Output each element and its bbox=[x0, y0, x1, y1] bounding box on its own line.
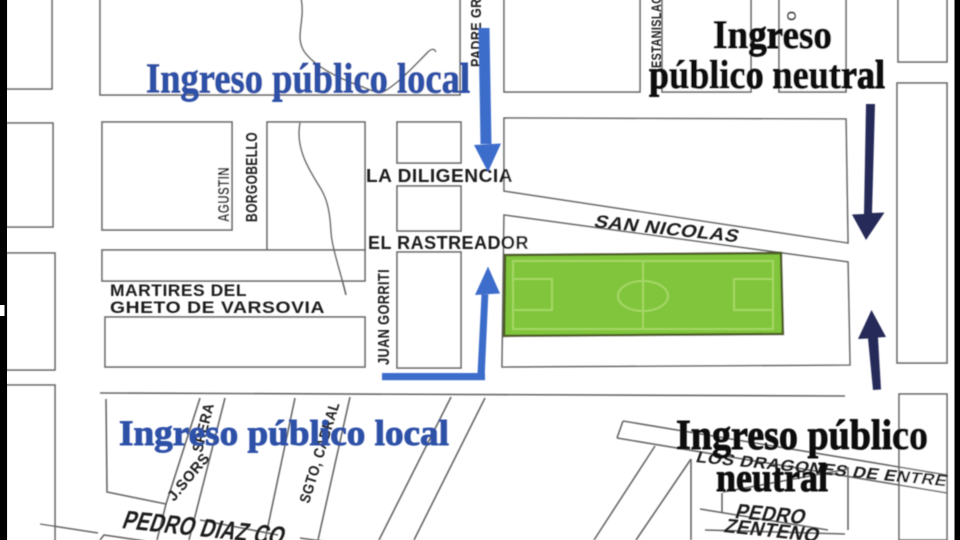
svg-text:Ingreso: Ingreso bbox=[713, 12, 832, 57]
svg-text:Ingreso público local: Ingreso público local bbox=[119, 413, 449, 453]
svg-text:GHETO DE VARSOVIA: GHETO DE VARSOVIA bbox=[110, 298, 325, 317]
svg-text:EL RASTREADOR: EL RASTREADOR bbox=[368, 232, 529, 253]
svg-text:público neutral: público neutral bbox=[649, 52, 885, 97]
svg-text:AGUSTIN: AGUSTIN bbox=[216, 167, 233, 222]
svg-text:neutral: neutral bbox=[716, 455, 828, 500]
svg-text:Ingreso público: Ingreso público bbox=[676, 413, 928, 459]
svg-text:LA DILIGENCIA: LA DILIGENCIA bbox=[366, 165, 513, 186]
svg-text:BORGOBELLO: BORGOBELLO bbox=[244, 132, 261, 222]
svg-text:Ingreso público local: Ingreso público local bbox=[146, 57, 470, 103]
svg-text:JUAN GORRITI: JUAN GORRITI bbox=[376, 269, 393, 365]
